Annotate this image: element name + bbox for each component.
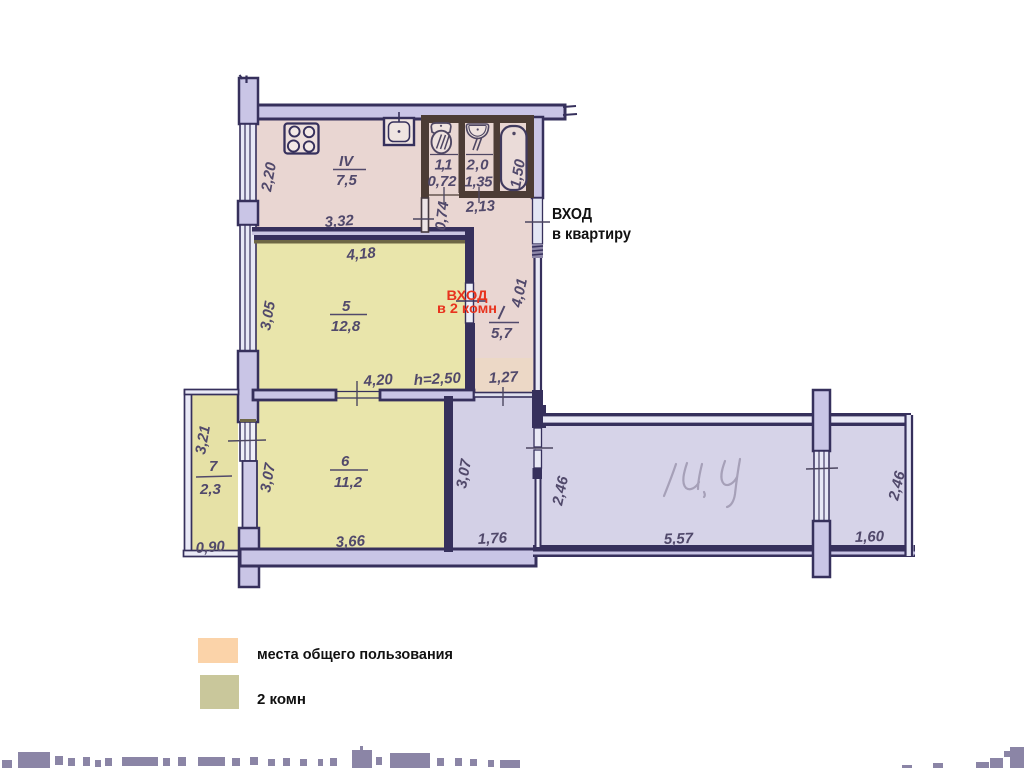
svg-text:h=2,50: h=2,50 [413,370,462,389]
svg-text:в 2 комн: в 2 комн [437,300,497,316]
svg-text:6: 6 [341,453,350,470]
svg-text:4,20: 4,20 [362,371,394,390]
svg-text:1,60: 1,60 [855,528,885,546]
svg-text:0,74: 0,74 [432,200,453,232]
svg-text:5,57: 5,57 [664,530,694,548]
svg-text:7,5: 7,5 [336,172,358,189]
svg-text:1,1: 1,1 [435,157,453,174]
svg-text:2 комн: 2 комн [257,691,306,708]
svg-text:5: 5 [342,298,351,315]
svg-text:11,2: 11,2 [334,474,363,491]
svg-text:3,66: 3,66 [335,532,366,551]
svg-text:1,35: 1,35 [465,174,494,191]
svg-text:7: 7 [209,458,218,475]
svg-text:IV: IV [339,153,355,170]
svg-text:ВХОД: ВХОД [552,206,593,223]
svg-text:0,90: 0,90 [195,538,226,557]
svg-text:2,13: 2,13 [464,197,496,216]
svg-text:3,32: 3,32 [324,212,355,231]
svg-text:1,27: 1,27 [488,368,519,387]
svg-text:4,18: 4,18 [345,244,377,264]
svg-text:в квартиру: в квартиру [552,226,631,243]
svg-text:2,3: 2,3 [199,481,222,498]
svg-text:0,72: 0,72 [428,173,458,190]
svg-text:5,7: 5,7 [491,325,513,342]
svg-text:12,8: 12,8 [331,318,361,335]
svg-text:1,76: 1,76 [477,529,508,548]
svg-text:2,0: 2,0 [466,157,490,174]
svg-text:места общего пользования: места общего пользования [257,646,453,663]
